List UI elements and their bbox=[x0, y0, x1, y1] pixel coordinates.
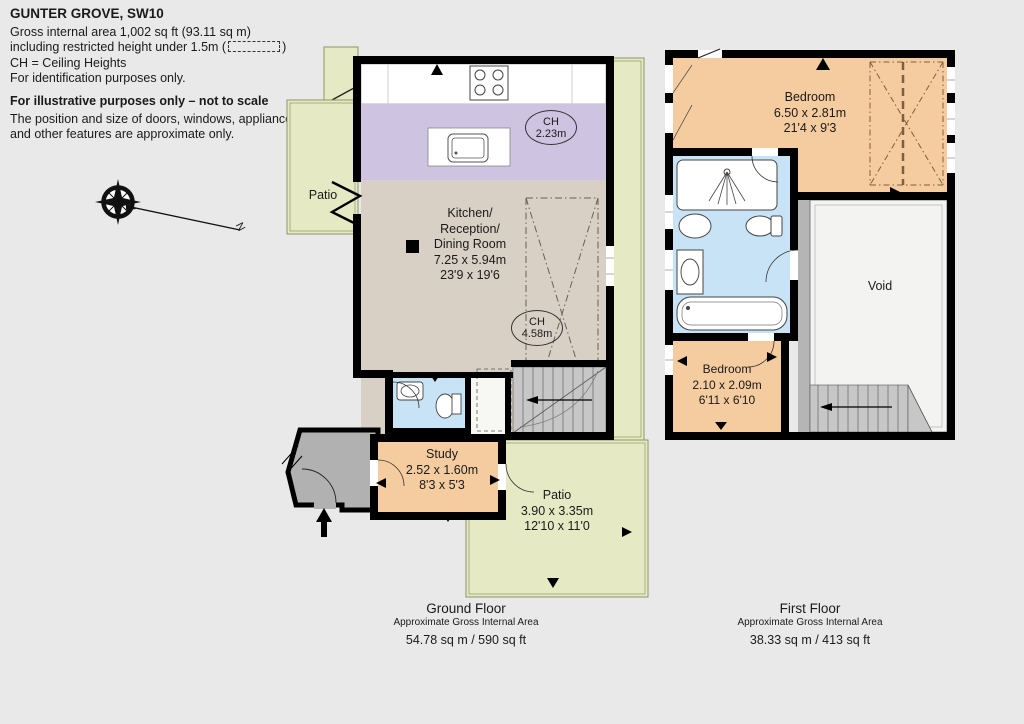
restricted-height-line: including restricted height under 1.5m (… bbox=[10, 40, 286, 56]
ceiling-height-badge: CH 4.58m bbox=[511, 310, 563, 346]
kitchen-dims-metric: 7.25 x 5.94m bbox=[390, 253, 550, 269]
restricted-height-dash-icon bbox=[228, 41, 280, 52]
ground-wc bbox=[393, 378, 505, 434]
ceiling-heights-line: CH = Ceiling Heights bbox=[10, 56, 286, 72]
window-right bbox=[606, 246, 614, 286]
gross-area-line: Gross internal area 1,002 sq ft (93.11 s… bbox=[10, 25, 286, 41]
ground-floor-area: 54.78 sq m / 590 sq ft bbox=[356, 633, 576, 647]
kitchen-dims-imperial: 23'9 x 19'6 bbox=[390, 268, 550, 284]
patio-label: Patio 3.90 x 3.35m 12'10 x 11'0 bbox=[477, 488, 637, 535]
first-floor-footer: First Floor Approximate Gross Internal A… bbox=[700, 601, 920, 647]
entry-arrow-icon bbox=[316, 508, 332, 522]
page-title: GUNTER GROVE, SW10 bbox=[10, 6, 286, 22]
compass-icon bbox=[80, 172, 265, 247]
bedroom2-label: Bedroom 2.10 x 2.09m 6'11 x 6'10 bbox=[667, 362, 787, 409]
kitchen-room-name: Kitchen/ Reception/ Dining Room bbox=[390, 206, 550, 253]
kitchen-label: Kitchen/ Reception/ Dining Room 7.25 x 5… bbox=[390, 206, 550, 284]
ground-floor-footer: Ground Floor Approximate Gross Internal … bbox=[356, 601, 576, 647]
first-floor-subtitle: Approximate Gross Internal Area bbox=[700, 617, 920, 629]
first-floor-area: 38.33 sq m / 413 sq ft bbox=[700, 633, 920, 647]
disclaimer-title: For illustrative purposes only – not to … bbox=[10, 94, 298, 110]
bedroom-label: Bedroom 6.50 x 2.81m 21'4 x 9'3 bbox=[730, 90, 890, 137]
void-label: Void bbox=[840, 279, 920, 295]
disclaimer-block: For illustrative purposes only – not to … bbox=[10, 94, 298, 143]
header-block: GUNTER GROVE, SW10 Gross internal area 1… bbox=[10, 6, 286, 87]
study-label: Study 2.52 x 1.60m 8'3 x 5'3 bbox=[382, 447, 502, 494]
ground-floor-subtitle: Approximate Gross Internal Area bbox=[356, 617, 576, 629]
patio-left-label: Patio bbox=[289, 188, 357, 204]
first-floor-title: First Floor bbox=[700, 601, 920, 617]
identification-line: For identification purposes only. bbox=[10, 71, 286, 87]
ceiling-height-badge: CH 2.23m bbox=[525, 110, 577, 145]
floorplan-page: GUNTER GROVE, SW10 Gross internal area 1… bbox=[0, 0, 1024, 724]
ground-floor-title: Ground Floor bbox=[356, 601, 576, 617]
entrance-hall bbox=[282, 430, 378, 537]
